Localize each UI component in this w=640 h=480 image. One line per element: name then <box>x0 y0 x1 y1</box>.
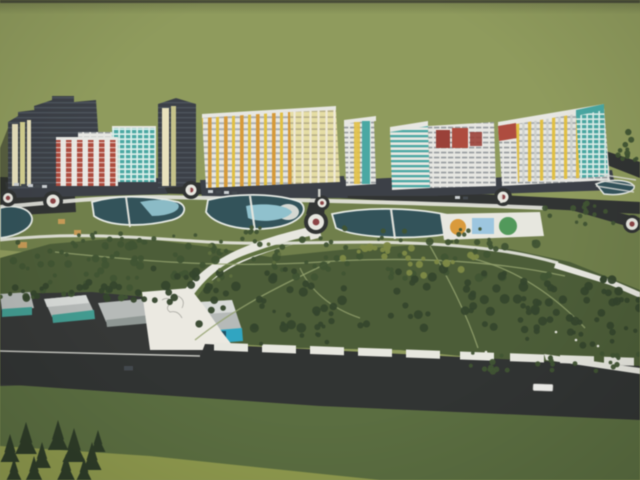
car <box>124 366 133 371</box>
kiosk-tan-1 <box>58 219 65 224</box>
tree <box>483 251 490 258</box>
court-green <box>499 217 517 235</box>
tree <box>416 261 423 268</box>
tree <box>623 142 629 148</box>
tree <box>337 296 347 306</box>
bay <box>310 346 344 355</box>
tree <box>124 295 128 299</box>
tree <box>608 275 617 284</box>
tree <box>334 255 340 261</box>
tree <box>231 282 241 292</box>
tree <box>135 290 142 297</box>
tree <box>268 274 277 283</box>
tree <box>505 368 510 373</box>
tree <box>244 230 249 235</box>
tree <box>131 297 137 303</box>
building-teal <box>112 128 156 182</box>
tree <box>341 285 347 291</box>
tree <box>605 289 612 296</box>
tree <box>607 322 615 330</box>
tree <box>426 238 434 246</box>
masterplan-photo <box>0 0 640 480</box>
tree <box>26 267 30 271</box>
tree <box>547 316 554 323</box>
tree <box>434 259 439 264</box>
roundabout <box>182 181 200 199</box>
tree <box>456 232 461 237</box>
tree <box>281 321 285 325</box>
tree <box>330 303 338 311</box>
park-bench <box>555 331 558 334</box>
tree <box>264 270 270 276</box>
tree <box>594 317 599 322</box>
tree <box>48 260 55 267</box>
tree <box>312 264 317 269</box>
tree <box>173 252 178 257</box>
tree <box>73 243 79 249</box>
tree <box>428 272 437 281</box>
tree <box>23 294 31 302</box>
tree <box>10 257 18 265</box>
roundabout <box>43 191 63 211</box>
tree <box>532 307 540 315</box>
tree <box>311 273 319 281</box>
car <box>208 190 213 193</box>
tree <box>408 314 413 319</box>
tree <box>81 239 85 243</box>
tree <box>211 256 220 265</box>
backdrop-top-edge <box>0 0 640 3</box>
tree <box>325 340 330 345</box>
tree <box>466 228 471 233</box>
tree <box>283 267 288 272</box>
tree <box>454 239 459 244</box>
tree <box>463 285 470 292</box>
tree <box>614 287 623 296</box>
tree <box>342 225 346 229</box>
tree <box>625 129 631 135</box>
tree <box>493 246 499 252</box>
tree <box>314 310 320 316</box>
crosswalk <box>188 185 191 193</box>
maroon-block-1 <box>436 130 450 148</box>
tree <box>420 272 427 279</box>
tree <box>390 271 395 276</box>
car <box>463 197 468 200</box>
tree <box>37 261 44 268</box>
maroon-block-3 <box>470 132 482 146</box>
tree <box>102 242 109 249</box>
tree <box>402 229 407 234</box>
tree <box>598 309 606 317</box>
tree <box>566 314 574 322</box>
tree <box>482 366 487 371</box>
tree <box>126 276 131 281</box>
park-bench <box>485 351 488 354</box>
tree <box>343 245 348 250</box>
tree <box>167 299 173 305</box>
tree <box>192 274 200 282</box>
tree <box>91 236 95 240</box>
tree <box>619 297 624 302</box>
building-teal-striped <box>390 126 430 190</box>
tree <box>625 154 630 159</box>
tree <box>64 260 72 268</box>
tree <box>48 280 53 285</box>
tree <box>116 284 122 290</box>
tree <box>578 214 583 219</box>
tree <box>393 288 400 295</box>
tree <box>478 227 481 230</box>
tree <box>82 283 89 290</box>
tree <box>272 310 276 314</box>
tree <box>583 222 587 226</box>
tree <box>210 296 218 304</box>
tree <box>31 290 37 296</box>
tree <box>474 239 480 245</box>
tree <box>513 294 522 303</box>
tree <box>341 271 345 275</box>
tree <box>625 148 629 152</box>
tree <box>470 291 476 297</box>
tree <box>296 323 306 333</box>
car <box>232 192 237 195</box>
tree <box>490 368 497 375</box>
tree <box>137 239 141 243</box>
tree <box>559 295 567 303</box>
tree <box>414 310 423 319</box>
tree <box>344 261 350 267</box>
tree <box>421 257 425 261</box>
tree <box>258 226 262 230</box>
tree <box>194 233 198 237</box>
tree <box>110 275 117 282</box>
tree <box>545 298 553 306</box>
tree <box>92 255 100 263</box>
tree <box>550 286 557 293</box>
tree <box>102 257 108 263</box>
tree <box>615 152 620 157</box>
tree <box>489 359 495 365</box>
bay <box>262 344 296 353</box>
tree <box>210 280 214 284</box>
car <box>28 184 33 187</box>
tree <box>254 230 259 235</box>
tree <box>77 233 81 237</box>
tree <box>59 250 64 255</box>
tree <box>609 329 616 336</box>
tree <box>299 287 308 296</box>
tree <box>553 309 560 316</box>
tree <box>199 262 205 268</box>
tree <box>600 276 607 283</box>
tree <box>220 249 224 253</box>
tree <box>459 228 462 231</box>
tree <box>458 266 465 273</box>
car <box>35 185 40 188</box>
tree <box>208 307 215 314</box>
tree <box>76 284 83 291</box>
roundabout <box>304 210 328 234</box>
building-long-orange <box>202 112 292 188</box>
tree <box>584 208 588 212</box>
tree <box>259 303 265 309</box>
tree <box>187 281 195 289</box>
tree <box>487 238 491 242</box>
tree <box>356 253 363 260</box>
tree <box>328 318 334 324</box>
bay <box>510 353 544 362</box>
car <box>224 191 229 194</box>
bay <box>460 352 494 361</box>
tree <box>97 267 104 274</box>
tree <box>261 298 267 304</box>
park-bench <box>597 345 600 348</box>
tree <box>610 339 615 344</box>
roundabout <box>494 188 512 206</box>
tree <box>53 273 57 277</box>
tree <box>253 239 257 243</box>
tree <box>385 249 390 254</box>
crosswalk <box>500 195 503 203</box>
tree <box>550 362 555 367</box>
tree <box>405 255 411 261</box>
tree <box>532 240 536 244</box>
tree <box>594 369 599 374</box>
tree <box>381 229 386 234</box>
tree <box>471 351 475 355</box>
tree <box>592 212 596 216</box>
tree <box>107 236 113 242</box>
tree <box>286 286 293 293</box>
tree <box>501 243 509 251</box>
tree <box>300 333 305 338</box>
tree <box>324 242 329 247</box>
building-red-white <box>50 140 118 186</box>
tree <box>103 294 110 301</box>
tree <box>151 236 156 241</box>
building-long-paleyellow <box>290 110 340 184</box>
tree <box>152 297 158 303</box>
building-right-yellow-section <box>516 114 580 182</box>
tree <box>220 305 226 311</box>
tree <box>492 284 500 292</box>
tree <box>377 238 380 241</box>
tree <box>567 328 574 335</box>
building-mid-teal-band <box>362 121 370 184</box>
tree <box>126 284 133 291</box>
tree <box>603 209 608 214</box>
tree <box>533 299 540 306</box>
bus <box>533 384 553 392</box>
tree <box>624 298 629 303</box>
tree <box>319 236 323 240</box>
tree <box>99 288 105 294</box>
tree <box>363 320 370 327</box>
tree <box>340 255 347 262</box>
tree <box>395 268 402 275</box>
tree <box>583 297 590 304</box>
tree <box>618 148 623 153</box>
tree <box>600 351 605 356</box>
car <box>42 185 47 188</box>
tree <box>624 326 628 330</box>
tree <box>481 270 487 276</box>
tree <box>218 268 222 272</box>
tree <box>224 249 228 253</box>
tree <box>420 324 429 333</box>
tree <box>117 241 124 248</box>
maroon-block-2 <box>452 128 468 148</box>
building-mid-yellow-band <box>354 122 360 184</box>
tree <box>184 275 189 280</box>
tree <box>633 158 637 162</box>
tree <box>195 320 202 327</box>
tree <box>61 291 66 296</box>
tree <box>19 263 26 270</box>
tree <box>360 245 365 250</box>
tree <box>548 214 553 219</box>
bay <box>214 343 248 352</box>
tree <box>213 288 219 294</box>
tree <box>399 238 403 242</box>
tree <box>462 232 466 236</box>
tree <box>611 364 616 369</box>
tree <box>540 273 548 281</box>
tree <box>593 204 597 208</box>
tree <box>402 276 407 281</box>
bay <box>406 350 440 359</box>
tree <box>500 294 510 304</box>
tree <box>490 323 498 331</box>
tree <box>314 324 320 330</box>
tree <box>12 284 19 291</box>
roundabout <box>0 190 17 207</box>
tree <box>575 221 578 224</box>
tree <box>161 281 171 291</box>
tree <box>286 312 291 317</box>
tree <box>408 262 413 267</box>
tree <box>43 283 49 289</box>
roundabout <box>315 196 330 211</box>
tree <box>482 321 488 327</box>
tree <box>450 240 453 243</box>
tree <box>620 157 625 162</box>
tower1-cream-stripe <box>12 124 18 186</box>
tree <box>267 242 271 246</box>
tree <box>15 240 20 245</box>
tree <box>174 273 181 280</box>
tree <box>471 255 477 261</box>
tree <box>534 328 540 334</box>
tree <box>628 137 634 143</box>
tree <box>257 242 263 248</box>
tree <box>47 248 52 253</box>
tree <box>486 307 495 316</box>
tree <box>320 304 328 312</box>
tree <box>151 266 157 272</box>
tree <box>84 272 89 277</box>
tree <box>423 283 431 291</box>
tree <box>611 221 615 225</box>
tree <box>521 326 529 334</box>
tree <box>584 282 593 291</box>
tree <box>272 261 276 265</box>
tree <box>526 309 532 315</box>
tree <box>120 237 124 241</box>
tree <box>114 251 120 257</box>
tree <box>291 268 297 274</box>
tree <box>278 252 282 256</box>
tree <box>21 289 25 293</box>
tree <box>329 311 334 316</box>
tree <box>548 356 553 361</box>
tree <box>65 253 69 257</box>
tree <box>357 250 361 254</box>
tree <box>299 236 306 243</box>
tree <box>425 311 430 316</box>
tree <box>544 280 551 287</box>
tree <box>118 294 125 301</box>
tower1-yellow-stripe <box>20 122 25 186</box>
tree <box>520 278 527 285</box>
tree <box>308 282 315 289</box>
tree <box>397 253 402 258</box>
tree <box>322 325 326 329</box>
tree <box>570 205 576 211</box>
tree <box>229 274 232 277</box>
tree <box>208 251 212 255</box>
tree <box>584 201 590 207</box>
tree <box>35 253 41 259</box>
tower2-yellow-stripe <box>171 106 176 186</box>
tree <box>402 251 407 256</box>
tree <box>590 341 596 347</box>
bay <box>358 348 392 357</box>
tree <box>488 245 493 250</box>
tree <box>219 240 223 244</box>
tree <box>185 243 192 250</box>
tree <box>388 313 394 319</box>
tree <box>325 266 331 272</box>
tree <box>177 255 185 263</box>
tree <box>535 361 540 366</box>
tree <box>324 255 329 260</box>
tree <box>69 290 74 295</box>
tree <box>445 239 451 245</box>
tree <box>135 276 139 280</box>
court-blue <box>472 218 494 234</box>
tree <box>520 303 526 309</box>
tree <box>609 361 613 365</box>
tree <box>316 333 321 338</box>
tree <box>579 342 586 349</box>
tree <box>259 342 263 346</box>
tower2-cream-stripe <box>162 108 169 186</box>
tree <box>130 258 138 266</box>
tree <box>578 332 583 337</box>
tree <box>469 364 473 368</box>
car <box>14 183 19 186</box>
tree <box>304 260 308 264</box>
tree <box>408 245 415 252</box>
tree <box>500 354 504 358</box>
park-bench <box>575 339 578 342</box>
tree <box>279 244 285 250</box>
car <box>21 184 26 187</box>
tree <box>498 272 506 280</box>
tree <box>129 246 134 251</box>
